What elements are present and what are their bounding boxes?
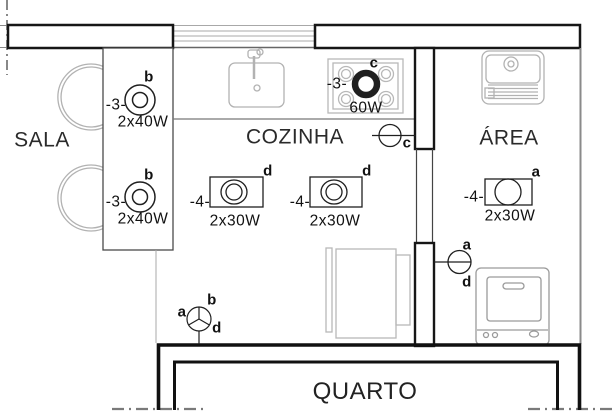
switch-abd-letter-right: d bbox=[212, 321, 222, 336]
power-label-sala1: 2x40W bbox=[118, 114, 169, 130]
window bbox=[173, 26, 315, 48]
ceiling-light-cozinha-1 bbox=[210, 177, 263, 207]
wall-switch-abd bbox=[187, 307, 211, 344]
circuit-label-stove: -3- bbox=[327, 76, 347, 92]
room-label-cozinha: COZINHA bbox=[246, 127, 344, 148]
room-label-area: ÁREA bbox=[479, 128, 538, 149]
ceiling-light-stove bbox=[355, 73, 377, 95]
power-label-cozinha1: 2x30W bbox=[210, 213, 261, 229]
laundry-tank bbox=[482, 51, 544, 104]
power-label-sala2: 2x40W bbox=[118, 211, 169, 227]
switch-letter-sala1: b bbox=[144, 70, 154, 85]
circuit-label-area1: -4- bbox=[464, 189, 484, 205]
power-label-area1: 2x30W bbox=[485, 208, 536, 224]
power-label-cozinha2: 2x30W bbox=[310, 213, 361, 229]
divider-wall-lower bbox=[415, 243, 434, 346]
room-label-quarto: QUARTO bbox=[313, 380, 418, 404]
refrigerator bbox=[326, 248, 410, 338]
circuit-label-cozinha2: -4- bbox=[290, 194, 310, 210]
circuit-label-sala2: -3- bbox=[106, 194, 126, 210]
floor-plan: SALA COZINHA ÁREA QUARTO b -3- 2x40W b -… bbox=[0, 0, 614, 420]
top-wall-left bbox=[8, 25, 173, 48]
switch-c-letter: c bbox=[403, 136, 412, 151]
switch-ad-letter-top: a bbox=[463, 238, 472, 253]
switch-ad-letter-bottom: d bbox=[462, 275, 472, 290]
circuit-label-sala1: -3- bbox=[106, 97, 126, 113]
ceiling-light-area bbox=[485, 179, 532, 205]
top-wall-right bbox=[315, 25, 580, 48]
kitchen-sink bbox=[229, 49, 284, 107]
wall-switch-ad bbox=[434, 251, 471, 274]
switch-letter-cozinha2: d bbox=[362, 164, 372, 179]
washing-machine bbox=[476, 268, 549, 345]
switch-abd-letter-left: a bbox=[178, 305, 187, 320]
room-label-sala: SALA bbox=[14, 130, 70, 151]
sala-door-arc-1 bbox=[58, 64, 108, 130]
switch-letter-cozinha1: d bbox=[263, 164, 273, 179]
divider-wall-upper bbox=[415, 48, 434, 149]
switch-abd-letter-top: b bbox=[207, 293, 217, 308]
switch-letter-area1: a bbox=[532, 165, 541, 180]
circuit-label-cozinha1: -4- bbox=[190, 194, 210, 210]
switch-letter-stove: c bbox=[370, 56, 379, 71]
sala-door-arc-2 bbox=[58, 165, 108, 231]
switch-letter-sala2: b bbox=[144, 168, 154, 183]
ceiling-light-cozinha-2 bbox=[310, 177, 362, 207]
power-label-stove: 60W bbox=[349, 100, 382, 116]
